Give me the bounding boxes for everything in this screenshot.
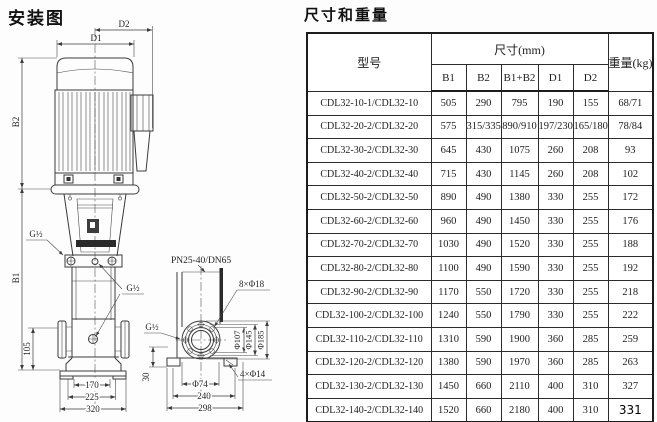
spec-table-panel: 尺寸和重量 型号 尺寸(mm) 重量(kg) B1 B2 B1+B2 D1 D2 xyxy=(302,0,657,422)
cell-b1b2: 1590 xyxy=(501,257,538,281)
label-d2: D2 xyxy=(119,19,130,29)
cell-weight: 68/71 xyxy=(608,91,653,115)
cell-weight: 78/84 xyxy=(608,115,653,139)
table-row: CDL32-120-2/CDL32-120 1380 590 1970 360 … xyxy=(307,351,653,375)
cell-weight: 102 xyxy=(608,162,653,186)
pump-base xyxy=(60,358,126,379)
front-view: D2 D1 xyxy=(11,19,153,414)
table-row: CDL32-20-2/CDL32-20 575 315/335 890/910 … xyxy=(307,115,653,139)
label-bolt-holes-8: 8×Φ18 xyxy=(239,279,265,289)
cell-d2: 255 xyxy=(573,257,608,281)
cell-d2: 208 xyxy=(573,139,608,163)
pump-head xyxy=(65,255,122,267)
cell-b1b2: 1145 xyxy=(501,162,538,186)
cell-b1: 715 xyxy=(431,162,466,186)
installation-drawing-panel: 安装图 D2 D1 xyxy=(0,0,302,422)
label-dim-320: 320 xyxy=(86,404,100,414)
cell-b1: 960 xyxy=(431,209,466,233)
cell-b2: 550 xyxy=(466,304,501,328)
label-dim-240: 240 xyxy=(197,391,211,401)
cell-d1: 330 xyxy=(538,186,573,210)
cell-d1: 360 xyxy=(538,351,573,375)
col-header-d2: D2 xyxy=(573,65,608,92)
label-base-holes-4: 4×Φ14 xyxy=(240,369,266,379)
cell-weight: 93 xyxy=(608,139,653,163)
cell-b1: 645 xyxy=(431,139,466,163)
top-view: PN25-40/DN65 xyxy=(141,256,272,413)
col-header-size-group: 尺寸(mm) xyxy=(431,33,608,65)
col-header-d1: D1 xyxy=(538,65,573,92)
cell-d1: 400 xyxy=(538,398,573,422)
cell-weight: 218 xyxy=(608,280,653,304)
cell-b2: 660 xyxy=(466,398,501,422)
cell-d2: 285 xyxy=(573,327,608,351)
table-row: CDL32-90-2/CDL32-90 1170 550 1720 330 25… xyxy=(307,280,653,304)
cell-d1: 330 xyxy=(538,257,573,281)
cell-b1b2: 2180 xyxy=(501,398,538,422)
cell-d1: 260 xyxy=(538,139,573,163)
cell-weight: 172 xyxy=(608,186,653,210)
cell-b1: 1100 xyxy=(431,257,466,281)
cell-b1b2: 1075 xyxy=(501,139,538,163)
cell-model: CDL32-80-2/CDL32-80 xyxy=(307,257,431,281)
table-row: CDL32-130-2/CDL32-130 1450 660 2110 400 … xyxy=(307,375,653,399)
cell-d2: 165/180 xyxy=(573,115,608,139)
table-row: CDL32-10-1/CDL32-10 505 290 795 190 155 … xyxy=(307,91,653,115)
cell-model: CDL32-70-2/CDL32-70 xyxy=(307,233,431,257)
cell-b1: 1450 xyxy=(431,375,466,399)
cell-b2: 490 xyxy=(466,233,501,257)
cell-model: CDL32-110-2/CDL32-110 xyxy=(307,327,431,351)
cell-b1: 1310 xyxy=(431,327,466,351)
cell-weight: 327 xyxy=(608,375,653,399)
cell-model: CDL32-130-2/CDL32-130 xyxy=(307,375,431,399)
cell-model: CDL32-10-1/CDL32-10 xyxy=(307,91,431,115)
cell-weight: 192 xyxy=(608,257,653,281)
label-dia-107: Φ107 xyxy=(232,331,242,350)
table-row: CDL32-80-2/CDL32-80 1100 490 1590 330 25… xyxy=(307,257,653,281)
catalog-page: 安装图 D2 D1 xyxy=(0,0,657,422)
cell-d2: 285 xyxy=(573,351,608,375)
cell-model: CDL32-20-2/CDL32-20 xyxy=(307,115,431,139)
cell-weight: 176 xyxy=(608,209,653,233)
col-header-b1b2: B1+B2 xyxy=(501,65,538,92)
cell-weight: 263 xyxy=(608,351,653,375)
cell-model: CDL32-60-2/CDL32-60 xyxy=(307,209,431,233)
label-b1: B1 xyxy=(11,273,21,284)
col-header-b1: B1 xyxy=(431,65,466,92)
cell-d1: 330 xyxy=(538,280,573,304)
cell-b1b2: 795 xyxy=(501,91,538,115)
cell-model: CDL32-120-2/CDL32-120 xyxy=(307,351,431,375)
spec-table-body: CDL32-10-1/CDL32-10 505 290 795 190 155 … xyxy=(307,91,653,422)
cell-model: CDL32-50-2/CDL32-50 xyxy=(307,186,431,210)
cell-weight: 259 xyxy=(608,327,653,351)
cell-b1: 1380 xyxy=(431,351,466,375)
cell-b1: 1030 xyxy=(431,233,466,257)
cell-b1b2: 1790 xyxy=(501,304,538,328)
label-dim-298: 298 xyxy=(198,403,212,413)
cell-model: CDL32-100-2/CDL32-100 xyxy=(307,304,431,328)
motor-outline xyxy=(51,58,153,200)
cell-b2: 590 xyxy=(466,351,501,375)
cell-b2: 490 xyxy=(466,186,501,210)
cell-d1: 330 xyxy=(538,233,573,257)
cell-b1b2: 1450 xyxy=(501,209,538,233)
table-row: CDL32-60-2/CDL32-60 960 490 1450 330 255… xyxy=(307,209,653,233)
cell-d2: 155 xyxy=(573,91,608,115)
cell-b1b2: 1380 xyxy=(501,186,538,210)
cell-d2: 255 xyxy=(573,304,608,328)
col-header-model: 型号 xyxy=(307,33,431,91)
table-row: CDL32-110-2/CDL32-110 1310 590 1900 360 … xyxy=(307,327,653,351)
pump-lantern xyxy=(64,194,126,256)
cell-d1: 260 xyxy=(538,162,573,186)
cell-b1: 575 xyxy=(431,115,466,139)
label-dia-145: Φ145 xyxy=(244,331,254,350)
cell-b1b2: 1900 xyxy=(501,327,538,351)
cell-d1: 330 xyxy=(538,304,573,328)
label-dim-225: 225 xyxy=(85,392,99,402)
cell-b1: 890 xyxy=(431,186,466,210)
cell-b2: 430 xyxy=(466,162,501,186)
label-dia-185: Φ185 xyxy=(256,331,266,350)
cell-b1: 1170 xyxy=(431,280,466,304)
cell-d1: 190 xyxy=(538,91,573,115)
cell-d2: 310 xyxy=(573,398,608,422)
cell-d2: 255 xyxy=(573,233,608,257)
label-g-left: G½ xyxy=(29,229,42,239)
cell-b2: 315/335 xyxy=(466,115,501,139)
table-row: CDL32-40-2/CDL32-40 715 430 1145 260 208… xyxy=(307,162,653,186)
label-g-top: G½ xyxy=(145,322,158,332)
cell-b1: 1520 xyxy=(431,398,466,422)
pump-barrel xyxy=(58,267,129,358)
cell-b2: 660 xyxy=(466,375,501,399)
label-b2: B2 xyxy=(11,117,21,128)
diagram-title: 安装图 xyxy=(8,4,65,29)
cell-d2: 310 xyxy=(573,375,608,399)
spec-table: 型号 尺寸(mm) 重量(kg) B1 B2 B1+B2 D1 D2 CDL32… xyxy=(306,32,654,422)
table-row: CDL32-70-2/CDL32-70 1030 490 1520 330 25… xyxy=(307,233,653,257)
cell-model: CDL32-140-2/CDL32-140 xyxy=(307,398,431,422)
cell-d2: 255 xyxy=(573,186,608,210)
cell-d1: 400 xyxy=(538,375,573,399)
cell-b2: 430 xyxy=(466,139,501,163)
cell-b2: 550 xyxy=(466,280,501,304)
cell-d2: 255 xyxy=(573,209,608,233)
cell-d2: 208 xyxy=(573,162,608,186)
cell-d1: 360 xyxy=(538,327,573,351)
label-dim-170: 170 xyxy=(85,380,99,390)
cell-b2: 490 xyxy=(466,209,501,233)
cell-weight: 331 xyxy=(608,398,653,422)
cell-b2: 290 xyxy=(466,91,501,115)
table-row: CDL32-30-2/CDL32-30 645 430 1075 260 208… xyxy=(307,139,653,163)
col-header-b2: B2 xyxy=(466,65,501,92)
cell-model: CDL32-30-2/CDL32-30 xyxy=(307,139,431,163)
cell-d1: 197/230 xyxy=(538,115,573,139)
cell-b1b2: 1520 xyxy=(501,233,538,257)
cell-d2: 255 xyxy=(573,280,608,304)
cell-b1b2: 1970 xyxy=(501,351,538,375)
label-dim-105: 105 xyxy=(22,342,32,356)
label-g-right: G½ xyxy=(126,283,139,293)
cell-model: CDL32-40-2/CDL32-40 xyxy=(307,162,431,186)
cell-model: CDL32-90-2/CDL32-90 xyxy=(307,280,431,304)
cell-b2: 490 xyxy=(466,257,501,281)
table-row: CDL32-100-2/CDL32-100 1240 550 1790 330 … xyxy=(307,304,653,328)
installation-diagram: D2 D1 xyxy=(0,0,302,422)
cell-b1b2: 1720 xyxy=(501,280,538,304)
cell-weight: 222 xyxy=(608,304,653,328)
table-row: CDL32-140-2/CDL32-140 1520 660 2180 400 … xyxy=(307,398,653,422)
cell-weight: 188 xyxy=(608,233,653,257)
cell-b1: 1240 xyxy=(431,304,466,328)
table-row: CDL32-50-2/CDL32-50 890 490 1380 330 255… xyxy=(307,186,653,210)
label-dim-30: 30 xyxy=(141,372,151,382)
table-title: 尺寸和重量 xyxy=(304,4,389,25)
col-header-weight: 重量(kg) xyxy=(608,33,653,91)
cell-b2: 590 xyxy=(466,327,501,351)
cell-b1b2: 2110 xyxy=(501,375,538,399)
cell-d1: 330 xyxy=(538,209,573,233)
cell-b1b2: 890/910 xyxy=(501,115,538,139)
label-d1: D1 xyxy=(91,33,102,43)
label-dia-74: Φ74 xyxy=(192,379,208,389)
cell-b1: 505 xyxy=(431,91,466,115)
label-flange-spec: PN25-40/DN65 xyxy=(171,256,231,266)
